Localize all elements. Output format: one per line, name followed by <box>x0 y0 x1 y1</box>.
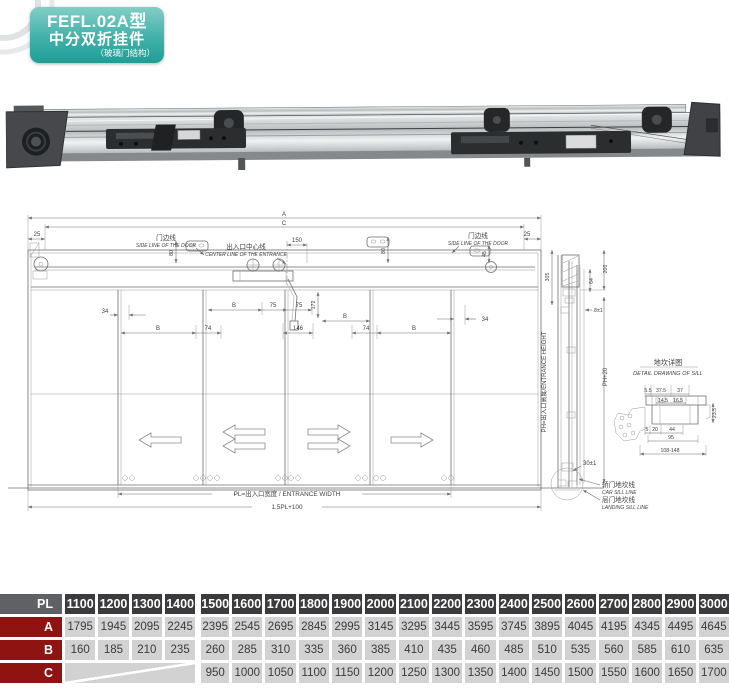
dim-146: 146 <box>293 326 304 332</box>
product-subtitle: （玻璃门结构） <box>30 48 164 59</box>
dim-80-left: 80 <box>169 250 175 256</box>
table-cell: 210 <box>132 640 162 660</box>
sill-bracket <box>614 407 645 441</box>
overall-width-label: 1.5PL+100 <box>271 504 303 511</box>
dim-34-left: 34 <box>102 309 109 315</box>
table-cell: 2395 <box>198 617 229 637</box>
hanging-bolt <box>238 158 245 170</box>
table-col-header: 2000 <box>365 594 395 614</box>
dim-305: 305 <box>545 273 551 282</box>
dim-75-a: 75 <box>270 303 277 309</box>
dim-5: 5 <box>646 427 649 433</box>
table-col-header: 1100 <box>65 594 95 614</box>
table-cell: 3895 <box>532 617 562 637</box>
top-dimensions: A C 25 25 45 80 80 150 门边线 SIDE LINE OF … <box>28 212 541 264</box>
table-col-header: 2400 <box>499 594 529 614</box>
dim-20: 20 <box>652 427 658 433</box>
table-cell: 3745 <box>499 617 529 637</box>
table-cell: 3295 <box>399 617 429 637</box>
table-col-header: 1300 <box>132 594 162 614</box>
table-cell: 2245 <box>165 617 195 637</box>
table-cell: 460 <box>465 640 495 660</box>
table-cell: 4645 <box>699 617 729 637</box>
dim-16-5: 16.5 <box>673 398 683 404</box>
table-col-header: 2500 <box>532 594 562 614</box>
table-cell: 2095 <box>132 617 162 637</box>
table-row-label: B <box>0 640 62 660</box>
dim-14-5: 14.5 <box>658 398 668 404</box>
table-cell: 360 <box>332 640 362 660</box>
technical-drawing: A C 25 25 45 80 80 150 门边线 SIDE LINE OF … <box>0 197 729 589</box>
left-end-pulley-assembly <box>6 105 68 167</box>
table-cell: 1650 <box>665 663 695 683</box>
dim-5-5: 5.5 <box>644 388 651 394</box>
table-cell: 335 <box>299 640 329 660</box>
table-col-header: 2200 <box>432 594 462 614</box>
door-operator-photo <box>6 98 724 182</box>
table-cell: 235 <box>165 640 195 660</box>
table-cell: 1500 <box>565 663 595 683</box>
table-cell: 1600 <box>632 663 662 683</box>
side-line-label-left-cn: 门边线 <box>156 233 176 242</box>
table-cell: 4045 <box>565 617 595 637</box>
table-cell: 485 <box>499 640 529 660</box>
table-col-header: 2900 <box>665 594 695 614</box>
table-cell: 410 <box>399 640 429 660</box>
entrance-height-label: PH=出入口高度/ENTRANCE HEIGHT <box>540 331 548 432</box>
table-cell: 510 <box>532 640 562 660</box>
table-cell: 310 <box>265 640 295 660</box>
table-row-label: A <box>0 617 62 637</box>
table-cell: 4345 <box>632 617 662 637</box>
table-cell: 535 <box>565 640 595 660</box>
table-cell: 560 <box>599 640 629 660</box>
table-cell: 635 <box>699 640 729 660</box>
table-col-header: 1500 <box>198 594 229 614</box>
table-cell: 2545 <box>232 617 262 637</box>
front-elevation <box>8 237 604 490</box>
dim-74-left: 74 <box>205 326 212 332</box>
dim-44: 44 <box>669 427 675 433</box>
table-cell: 4495 <box>665 617 695 637</box>
table-cell: 1350 <box>465 663 495 683</box>
table-cell: 1550 <box>599 663 629 683</box>
hanging-bolt <box>524 158 530 167</box>
table-empty-cell <box>65 663 195 683</box>
sill-detail: 地坎详图 DETAIL DRAWING OF SILL 5.5 37.5 37 … <box>614 358 718 456</box>
dim-B-panel4: B <box>412 326 416 332</box>
table-cell: 950 <box>198 663 229 683</box>
door-motion-arrows <box>139 425 433 453</box>
product-title-badge: FEFL.02A型 中分双折挂件 （玻璃门结构） <box>30 7 164 63</box>
table-cell: 260 <box>198 640 229 660</box>
table-cell: 1945 <box>98 617 128 637</box>
dim-B-center-right: B <box>343 314 347 320</box>
dim-25-left: 25 <box>34 232 41 238</box>
table-cell: 1200 <box>365 663 395 683</box>
dim-150: 150 <box>292 238 303 244</box>
dim-B-panel1: B <box>156 326 160 332</box>
table-col-header: 1600 <box>232 594 262 614</box>
side-section-view: 305 200 64 8±1 PH=出入口高度/ENTRANCE HEIGHT … <box>540 250 649 511</box>
table-col-header: 3000 <box>699 594 729 614</box>
table-cell: 285 <box>232 640 262 660</box>
dim-34-right: 34 <box>482 317 489 323</box>
table-cell: 1795 <box>65 617 95 637</box>
dim-8plusminus1: 8±1 <box>594 308 603 314</box>
center-line-label-en: CENTER LINE OF THE ENTRANCE <box>205 252 287 258</box>
dim-23-5: 23.5 <box>712 408 718 418</box>
dim-30plusminus1: 30±1 <box>583 461 597 467</box>
dim-45: 45 <box>482 251 488 257</box>
table-cell: 1450 <box>532 663 562 683</box>
table-cell: 1150 <box>332 663 362 683</box>
table-col-header: 1700 <box>265 594 295 614</box>
sill-detail-title-en: DETAIL DRAWING OF SILL <box>633 371 703 377</box>
dim-172: 172 <box>311 301 317 310</box>
table-cell: 185 <box>98 640 128 660</box>
dimension-table: PL11001200130014001500160017001800190020… <box>0 594 729 683</box>
table-col-header: 2100 <box>399 594 429 614</box>
side-line-label-right-cn: 门边线 <box>468 231 488 240</box>
dim-A: A <box>282 212 286 218</box>
table-cell: 3445 <box>432 617 462 637</box>
table-cell: 2995 <box>332 617 362 637</box>
center-line-label-cn: 出入口中心线 <box>226 242 266 251</box>
table-cell: 2695 <box>265 617 295 637</box>
model-number: FEFL.02A型 <box>30 12 164 31</box>
dim-B-center-left: B <box>232 303 236 309</box>
catalog-page: FEFL.02A型 中分双折挂件 （玻璃门结构） <box>0 0 729 697</box>
dim-PH-plus-20: PH+20 <box>603 367 609 386</box>
table-col-header: 2800 <box>632 594 662 614</box>
landing-sill-line-label-en: LANDING SILL LINE <box>602 505 649 511</box>
entrance-width-label: PL=出入口宽度 / ENTRANCE WIDTH <box>234 489 341 498</box>
table-cell: 1300 <box>432 663 462 683</box>
dim-37: 37 <box>677 388 683 394</box>
table-cell: 385 <box>365 640 395 660</box>
table-cell: 610 <box>665 640 695 660</box>
dim-C: C <box>282 221 287 227</box>
table-col-header: 1200 <box>98 594 128 614</box>
table-col-header: 2700 <box>599 594 629 614</box>
table-col-header: 1400 <box>165 594 195 614</box>
table-cell: 1100 <box>299 663 329 683</box>
table-cell: 4195 <box>599 617 629 637</box>
table-col-header: 1900 <box>332 594 362 614</box>
dim-200: 200 <box>603 265 609 274</box>
table-cell: 3145 <box>365 617 395 637</box>
table-cell: 3595 <box>465 617 495 637</box>
table-corner-pl: PL <box>0 594 62 614</box>
dim-74-right: 74 <box>363 326 370 332</box>
car-sill-line-label-en: CAR SILL LINE <box>602 490 637 496</box>
table-col-header: 1800 <box>299 594 329 614</box>
car-sill-line-label-cn: 轿门地坎线 <box>602 480 635 489</box>
table-cell: 585 <box>632 640 662 660</box>
table-row-label: C <box>0 663 62 683</box>
dim-64: 64 <box>589 278 595 284</box>
door-panel-edges <box>118 290 454 485</box>
sill-detail-title-cn: 地坎详图 <box>654 358 683 367</box>
table-cell: 1400 <box>499 663 529 683</box>
table-cell: 1000 <box>232 663 262 683</box>
table-cell: 1050 <box>265 663 295 683</box>
right-door-hanger <box>451 131 631 154</box>
landing-sill-line-label-cn: 层门地坎线 <box>602 495 635 504</box>
dim-108-148: 108-148 <box>660 448 679 454</box>
dim-95: 95 <box>668 435 674 441</box>
table-cell: 1700 <box>699 663 729 683</box>
product-name: 中分双折挂件 <box>30 31 164 48</box>
dim-80-right: 80 <box>381 248 387 254</box>
table-col-header: 2300 <box>465 594 495 614</box>
table-col-header: 2600 <box>565 594 595 614</box>
side-line-label-right-en: SIDE LINE OF THE DOOR <box>448 241 509 247</box>
dim-25-right: 25 <box>524 232 531 238</box>
right-end-cap <box>684 102 720 156</box>
table-cell: 1250 <box>399 663 429 683</box>
dim-37-5: 37.5 <box>656 388 666 394</box>
table-cell: 2845 <box>299 617 329 637</box>
table-cell: 435 <box>432 640 462 660</box>
side-line-label-left-en: SIDE LINE OF THE DOOR <box>136 243 197 249</box>
dim-75-b: 75 <box>296 303 303 309</box>
table-cell: 160 <box>65 640 95 660</box>
